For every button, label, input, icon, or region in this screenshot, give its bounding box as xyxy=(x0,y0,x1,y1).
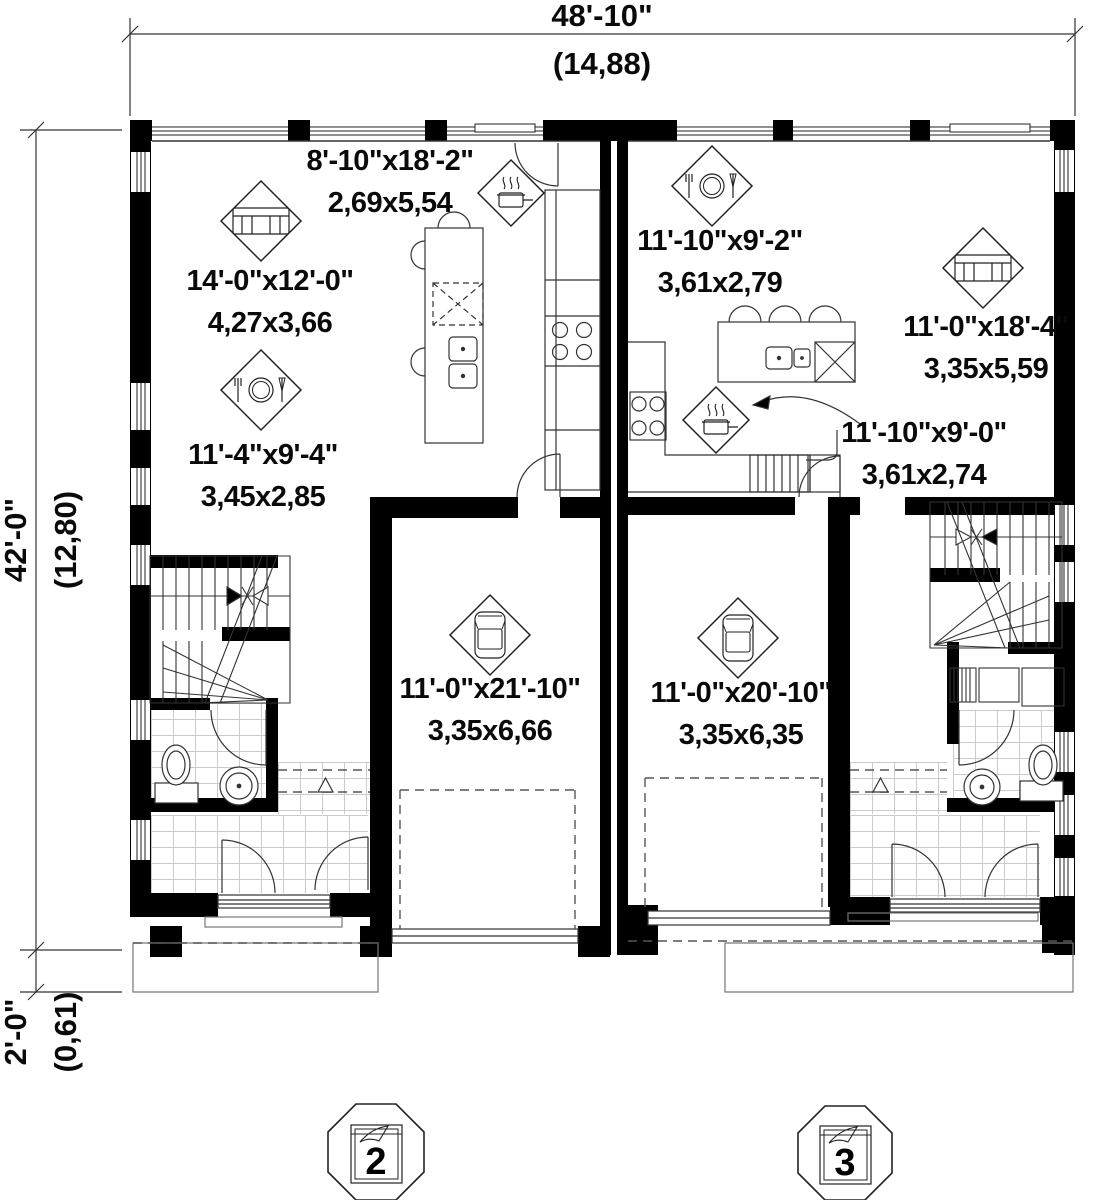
floor-plan-sheet: 2 3 48'-10" (14,88) 42'-0" (12,80) 2'-0"… xyxy=(0,0,1106,1200)
stool-icon xyxy=(729,306,841,322)
room-size-metric: 4,27x3,66 xyxy=(186,302,353,344)
room-size-imperial: 11'-10"x9'-2" xyxy=(637,220,802,262)
room-size-metric: 3,61x2,79 xyxy=(637,262,802,304)
bathroom-left xyxy=(155,710,266,805)
room-size-imperial: 11'-10"x9'-0" xyxy=(841,412,1006,454)
room-label-kitchen-left: 8'-10"x18'-2" 2,69x5,54 xyxy=(306,140,473,224)
sofa-icon xyxy=(221,181,301,261)
room-size-imperial: 11'-0"x21'-10" xyxy=(399,668,580,710)
room-size-imperial: 8'-10"x18'-2" xyxy=(306,140,473,182)
room-size-imperial: 14'-0"x12'-0" xyxy=(186,260,353,302)
dim-porch-imperial: 2'-0" xyxy=(0,952,36,1112)
stair-direction-arrow xyxy=(227,587,242,605)
room-label-kitchen-right: 11'-10"x9'-0" 3,61x2,74 xyxy=(841,412,1006,496)
room-size-imperial: 11'-0"x20'-10" xyxy=(650,672,831,714)
vanity xyxy=(155,783,198,803)
step-arrow xyxy=(873,778,888,792)
room-size-metric: 3,35x5,59 xyxy=(903,348,1068,390)
unit-marker-right: 3 xyxy=(798,1106,892,1200)
stove-icon xyxy=(683,387,749,453)
dim-top-imperial: 48'-10" xyxy=(551,0,652,32)
dim-left-metric: (12,80) xyxy=(46,460,86,620)
dim-top-metric: (14,88) xyxy=(553,48,651,80)
dining-icon xyxy=(221,350,301,430)
unit-number: 3 xyxy=(834,1142,855,1184)
room-size-metric: 3,45x2,85 xyxy=(188,476,338,518)
kitchen-island xyxy=(425,228,483,443)
step-arrow xyxy=(318,778,333,792)
car-icon xyxy=(698,598,778,678)
unit-markers: 2 3 xyxy=(328,1104,892,1200)
room-size-imperial: 11'-0"x18'-4" xyxy=(903,306,1068,348)
room-label-garage-left: 11'-0"x21'-10" 3,35x6,66 xyxy=(399,668,580,752)
room-label-garage-right: 11'-0"x20'-10" 3,35x6,35 xyxy=(650,672,831,756)
dim-porch-metric: (0,61) xyxy=(46,952,86,1112)
room-size-metric: 3,61x2,74 xyxy=(841,454,1006,496)
entry-doors xyxy=(222,778,1038,897)
room-size-imperial: 11'-4"x9'-4" xyxy=(188,434,338,476)
room-size-metric: 2,69x5,54 xyxy=(306,182,473,224)
unit-number: 2 xyxy=(365,1141,386,1183)
room-label-living-left: 14'-0"x12'-0" 4,27x3,66 xyxy=(186,260,353,344)
dim-left-imperial: 42'-0" xyxy=(0,460,36,620)
room-label-dining-left: 11'-4"x9'-4" 3,45x2,85 xyxy=(188,434,338,518)
room-size-metric: 3,35x6,66 xyxy=(399,710,580,752)
dining-icon xyxy=(672,146,752,226)
bathroom-right xyxy=(959,710,1063,805)
room-size-metric: 3,35x6,35 xyxy=(650,714,831,756)
car-icon xyxy=(450,595,530,675)
kitchen-right-fixtures xyxy=(628,306,864,497)
unit-marker-left: 2 xyxy=(328,1104,424,1200)
stove-icon xyxy=(478,160,544,226)
counter xyxy=(545,190,600,490)
staircase-right xyxy=(930,502,1064,706)
room-label-dining-right: 11'-10"x9'-2" 3,61x2,79 xyxy=(637,220,802,304)
floor-plan-drawing: 2 3 xyxy=(0,0,1106,1200)
sofa-icon xyxy=(943,228,1023,308)
room-label-living-right: 11'-0"x18'-4" 3,35x5,59 xyxy=(903,306,1068,390)
